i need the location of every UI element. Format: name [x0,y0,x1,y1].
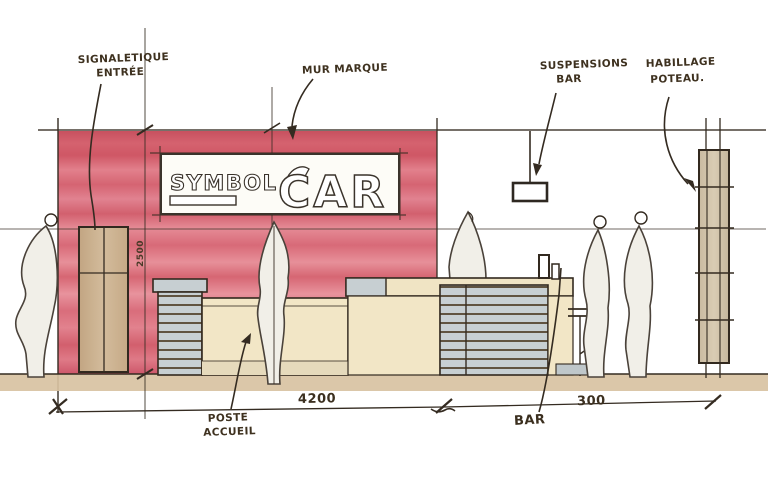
leader-suspensions [539,93,556,164]
suspension-lamp [513,131,547,201]
figure-sketch-barman [449,212,486,280]
bar-tap-small-icon [552,264,559,279]
bar-front-right [548,296,573,375]
logo-underline-bar [170,196,236,205]
annotation-brand-wall: MUR MARQUE [302,62,388,77]
bar-tap-icon [539,255,549,278]
annotation-bar: BAR [514,412,546,429]
annotation-column-cladding-line1: HABILLAGE [646,56,716,70]
dimension-line-4200 [56,407,444,412]
leader-brand-wall [292,79,313,126]
arrowhead [684,178,696,192]
desk-slat-column [158,292,202,375]
elevation-sketch-page: 2500 SYMBOL CAR [0,0,768,504]
clad-column [695,118,734,378]
bar-front-left [348,296,440,375]
dimension-squiggle [431,409,455,412]
bar-top-gray-cap [346,278,386,296]
annotation-column-cladding-line2: POTEAU. [650,72,704,86]
desk-slat-cap [153,279,207,292]
bar-slat-front [440,285,548,375]
logo-text-symbol: SYMBOL [170,171,277,195]
annotation-reception-desk-line1: POSTE [208,411,249,424]
lamp-shade-icon [513,183,547,201]
figure-sketch-right-b [624,212,652,377]
figure-sketch-right-a [584,216,610,377]
dimension-lines [49,395,721,414]
annotation-entrance-signage-line2: ENTRÉE [96,65,144,80]
annotation-entrance-signage-line1: SIGNALETIQUE [78,51,170,66]
dimension-label-right-width: 300 [577,393,606,409]
dimension-label-wall-height: 2500 [136,240,146,267]
annotation-suspensions-line1: SUSPENSIONS [540,57,629,72]
dimension-label-overall-width: 4200 [298,391,336,407]
logo-text-car: CAR [278,167,387,218]
floor-band [0,374,768,391]
elevation-sketch: 2500 SYMBOL CAR [0,0,768,504]
logo-panel: SYMBOL CAR [150,146,408,222]
leader-column-cladding [664,97,688,184]
dimension-tick [705,395,721,409]
annotation-suspensions-line2: BAR [556,73,582,86]
annotation-reception-desk-line2: ACCUEIL [203,425,256,439]
entrance-signage-column [79,227,128,372]
arrowhead [533,163,542,176]
figure-sketch-left [16,214,58,377]
